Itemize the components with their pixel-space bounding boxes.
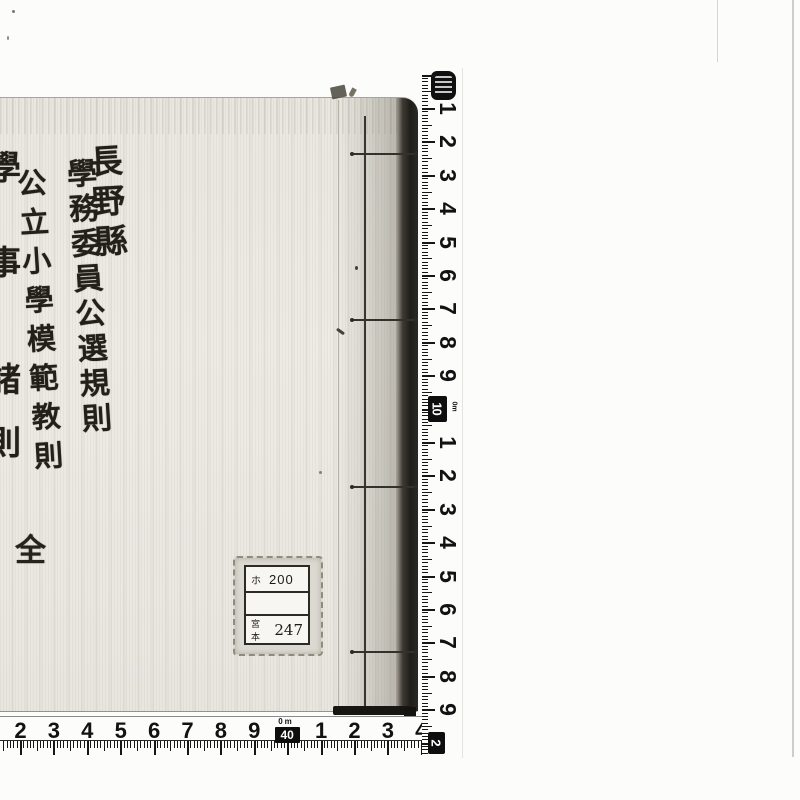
ruler-tick — [422, 442, 435, 444]
ruler-tick — [422, 192, 432, 193]
ruler-tick — [422, 639, 428, 640]
ruler-tick — [422, 205, 428, 206]
ruler-tick — [422, 175, 435, 177]
ruler-tick — [422, 98, 428, 99]
ruler-tick — [422, 345, 428, 346]
ruler-tick — [422, 198, 428, 199]
ruler-tick — [422, 489, 428, 490]
ruler-tick — [422, 713, 428, 714]
ruler-tick — [422, 168, 428, 169]
binding-stitch-segment — [352, 651, 416, 653]
ruler-tick — [422, 101, 428, 102]
ruler-tick — [422, 706, 428, 707]
sticker-row-1: ホ 200 — [246, 567, 308, 593]
ruler-tick — [422, 666, 428, 667]
ruler-tick — [422, 439, 428, 440]
ruler-tick — [422, 255, 428, 256]
ruler-tick — [422, 622, 428, 623]
ruler-tick — [422, 131, 428, 132]
ruler-unit-label: 0m — [278, 717, 294, 726]
ruler-tick — [422, 652, 428, 653]
ruler-tick — [422, 141, 435, 143]
ruler-tick — [422, 435, 428, 436]
ruler-tick — [422, 516, 428, 517]
ruler-cm-label: 2 — [5, 718, 35, 744]
ink-speck — [355, 266, 358, 270]
ruler-cm-label: 6 — [435, 262, 461, 288]
ruler-tick — [422, 662, 428, 663]
ruler-tick — [422, 218, 428, 219]
ruler-cm-label: 3 — [435, 496, 461, 522]
ruler-tick — [422, 646, 428, 647]
ruler-tick — [422, 445, 428, 446]
ruler-tick — [422, 178, 428, 179]
book-cover: 長野縣 學務委員公選規則 公立小學模範教則 學事諸則 全 ホ 200 宮本 24… — [0, 97, 418, 712]
sticker-shelf-code: ホ — [251, 572, 261, 587]
ruler-cm-label: 8 — [435, 329, 461, 355]
ruler-tick — [301, 741, 302, 748]
ruler-tick — [422, 429, 428, 430]
ruler-tick — [422, 485, 428, 486]
ruler-tick — [422, 228, 428, 229]
catalog-sticker-table: ホ 200 宮本 247 — [244, 565, 310, 645]
ruler-cm-label: 4 — [435, 529, 461, 555]
ruler-tick — [422, 719, 428, 720]
ruler-tick — [422, 128, 428, 129]
ruler-tick — [422, 592, 432, 593]
ruler-tick — [422, 195, 428, 196]
ruler-tick — [422, 365, 428, 366]
ruler-tick — [422, 546, 428, 547]
ruler-tick — [422, 612, 428, 613]
ruler-tick — [422, 158, 432, 159]
ruler-tick — [422, 295, 428, 296]
ruler-tick — [422, 225, 432, 226]
ruler-tick — [422, 125, 432, 126]
ruler-cm-label: 3 — [38, 718, 68, 744]
ink-speck — [12, 10, 15, 13]
ruler-tick — [422, 629, 428, 630]
ruler-tick — [422, 596, 428, 597]
ruler-tick — [422, 151, 428, 152]
ruler-tick — [422, 115, 428, 116]
ruler-tick — [422, 669, 428, 670]
ruler-tick — [422, 462, 428, 463]
ruler-tick — [422, 619, 428, 620]
ruler-tick — [422, 328, 428, 329]
ruler-tick — [422, 636, 428, 637]
archival-scan: 長野縣 學務委員公選規則 公立小學模範教則 學事諸則 全 ホ 200 宮本 24… — [0, 0, 800, 800]
ruler-tick — [422, 188, 428, 189]
ruler-cm-label: 8 — [205, 718, 235, 744]
binding-stitch-segment — [352, 153, 416, 155]
binding-stitch-segment — [352, 319, 416, 321]
ruler-tick — [422, 208, 435, 210]
ruler-tick — [422, 165, 428, 166]
ruler-tick — [422, 308, 435, 310]
ruler-tick — [422, 352, 428, 353]
ruler-tick — [422, 305, 428, 306]
cover-fold-line — [338, 100, 339, 709]
ruler-tick — [422, 649, 428, 650]
ruler-tick — [422, 105, 428, 106]
ruler-tick — [422, 449, 428, 450]
ruler-tick — [422, 455, 428, 456]
ruler-tick — [422, 322, 428, 323]
ruler-tick — [422, 355, 428, 356]
ruler-tick — [422, 519, 428, 520]
ruler-tick — [422, 509, 435, 511]
ruler-tick — [422, 312, 428, 313]
ruler-tick — [422, 335, 428, 336]
ruler-tick — [422, 539, 428, 540]
ruler-tick — [422, 602, 428, 603]
ruler-tick — [422, 245, 428, 246]
ruler-tick — [422, 586, 428, 587]
catalog-sticker: ホ 200 宮本 247 — [233, 556, 323, 656]
sticker-row-3: 宮本 247 — [246, 616, 308, 643]
ruler-tick — [422, 673, 428, 674]
ruler-decimeter-badge: 2 — [428, 732, 445, 754]
ruler-tick — [422, 459, 432, 460]
ruler-cm-label: 8 — [435, 663, 461, 689]
ruler-tick — [422, 382, 428, 383]
ruler-unit-label: 0m — [451, 401, 458, 411]
ruler-cm-label: 1 — [435, 95, 461, 121]
sticker-row-2 — [246, 593, 308, 616]
ruler-tick — [422, 753, 428, 754]
page-edge-shadow — [396, 98, 418, 711]
ruler-tick — [422, 502, 428, 503]
ruler-tick — [422, 542, 435, 544]
ruler-tick — [422, 121, 428, 122]
ruler-tick — [422, 495, 428, 496]
ink-speck — [7, 36, 9, 40]
ruler-tick — [422, 536, 428, 537]
ruler-tick — [422, 182, 428, 183]
ruler-tick — [271, 741, 272, 751]
ruler-tick — [422, 559, 432, 560]
ruler-tick — [422, 703, 428, 704]
ruler-tick — [422, 298, 428, 299]
ruler-cm-label: 5 — [435, 563, 461, 589]
binding-stitch-segment — [352, 486, 416, 488]
ruler-tick — [422, 492, 432, 493]
ruler-tick — [422, 238, 428, 239]
scan-edge-line — [717, 0, 718, 62]
ruler-tick — [422, 342, 435, 344]
ruler-tick — [422, 359, 432, 360]
ruler-tick — [422, 432, 428, 433]
ruler-tick — [422, 88, 428, 89]
ruler-cm-label: 5 — [105, 718, 135, 744]
ruler-tick — [422, 709, 435, 711]
ruler-tick — [422, 512, 428, 513]
ruler-tick — [422, 332, 428, 333]
ruler-badge-value: 2 — [429, 739, 444, 745]
ruler-tick — [422, 469, 428, 470]
ruler-tick — [422, 696, 428, 697]
ruler-tick — [422, 392, 432, 393]
sticker-collection-name: 宮本 — [251, 617, 266, 643]
ruler-tick — [422, 609, 435, 611]
ruler-tick — [422, 292, 432, 293]
ruler-tick — [422, 248, 428, 249]
ruler-tick — [422, 275, 435, 277]
ruler-tick — [422, 723, 428, 724]
ruler-tick — [287, 741, 289, 755]
ruler-tick — [422, 372, 428, 373]
ruler-tick — [422, 689, 428, 690]
ruler-tick — [422, 642, 435, 644]
ruler-tick — [422, 676, 435, 678]
ruler-tick — [422, 726, 432, 727]
ruler-tick — [422, 379, 428, 380]
ruler-cm-label: 4 — [435, 195, 461, 221]
ruler-tick — [422, 422, 428, 423]
book-quantity-char: 全 — [15, 536, 46, 567]
ruler-cm-label: 6 — [435, 596, 461, 622]
ruler-cm-label: 4 — [72, 718, 102, 744]
vertical-ruler: 123456789100m1234567892 — [422, 68, 463, 758]
ruler-tick — [422, 202, 428, 203]
ruler-tick — [422, 78, 428, 79]
ruler-tick — [422, 339, 428, 340]
ruler-tick — [422, 479, 428, 480]
ruler-cm-label: 7 — [172, 718, 202, 744]
ruler-tick — [422, 632, 428, 633]
ruler-tick — [422, 111, 428, 112]
ruler-tick — [422, 155, 428, 156]
ruler-tick — [422, 215, 428, 216]
ruler-tick — [422, 589, 428, 590]
binding-stitch-line — [364, 116, 366, 708]
ruler-tick — [422, 572, 428, 573]
ruler-cm-label: 2 — [339, 718, 369, 744]
ruler-tick — [422, 569, 428, 570]
ruler-tick — [422, 389, 428, 390]
book-title-secondary: 公立小學模範教則 — [14, 167, 62, 480]
ruler-tick — [422, 529, 428, 530]
book-bottom-edge — [333, 706, 411, 715]
ruler-tick — [422, 369, 428, 370]
ruler-tick — [422, 258, 432, 259]
ruler-tick — [422, 556, 428, 557]
ruler-cm-label: 1 — [306, 718, 336, 744]
ruler-tick — [422, 148, 428, 149]
ruler-tick — [422, 566, 428, 567]
ruler-tick — [422, 425, 432, 426]
ruler-tick — [422, 475, 435, 477]
ruler-tick — [422, 506, 428, 507]
ruler-cm-label: 5 — [435, 229, 461, 255]
ruler-tick — [422, 375, 435, 377]
ruler-tick — [422, 282, 428, 283]
ruler-tick — [422, 499, 428, 500]
sticker-collection-number: 247 — [274, 621, 303, 639]
ruler-tick — [422, 135, 428, 136]
ruler-tick — [422, 242, 435, 244]
ruler-tick — [422, 285, 428, 286]
ruler-tick — [422, 138, 428, 139]
ruler-tick — [422, 693, 432, 694]
ruler-tick — [422, 576, 435, 578]
ruler-tick — [422, 318, 428, 319]
ruler-tick — [422, 562, 428, 563]
ruler-tick — [422, 272, 428, 273]
ruler-tick — [422, 118, 428, 119]
ruler-tick — [422, 325, 432, 326]
horizontal-ruler: 23456789400m1234 — [0, 716, 444, 759]
ruler-tick — [422, 265, 428, 266]
ruler-tick — [422, 232, 428, 233]
scan-edge-line — [792, 0, 794, 757]
ruler-tick — [422, 252, 428, 253]
ruler-tick — [422, 185, 428, 186]
ruler-cm-label: 9 — [239, 718, 269, 744]
ruler-tick — [422, 172, 428, 173]
ruler-cm-label: 3 — [372, 718, 402, 744]
ruler-tick — [422, 95, 428, 96]
ruler-cm-label: 3 — [435, 162, 461, 188]
ruler-tick — [422, 395, 428, 396]
ruler-tick — [422, 288, 428, 289]
ruler-tick — [422, 522, 428, 523]
ruler-decimeter-badge: 10 — [428, 396, 447, 422]
ruler-tick — [422, 626, 432, 627]
ruler-tick — [422, 362, 428, 363]
ruler-decimeter-badge: 40 — [275, 727, 300, 743]
ruler-tick — [422, 212, 428, 213]
ruler-badge-value: 10 — [430, 402, 445, 414]
ruler-tick — [422, 302, 428, 303]
book-edge-char: 諸 — [0, 363, 21, 396]
ruler-tick — [422, 385, 428, 386]
ruler-tick — [422, 161, 428, 162]
ruler-tick — [422, 716, 428, 717]
ruler-cm-label: 1 — [435, 429, 461, 455]
ruler-tick — [422, 686, 428, 687]
ruler-tick — [422, 452, 428, 453]
ruler-tick — [422, 222, 428, 223]
spine-tint — [338, 98, 396, 711]
book-edge-char: 事 — [0, 246, 21, 279]
ruler-tick — [422, 582, 428, 583]
ruler-tick — [422, 599, 428, 600]
ruler-tick — [422, 235, 428, 236]
ruler-tick — [422, 465, 428, 466]
ruler-tick — [422, 91, 432, 92]
ruler-tick — [422, 606, 428, 607]
ruler-tick — [422, 699, 428, 700]
ruler-cm-label: 9 — [435, 696, 461, 722]
ruler-tick — [422, 616, 428, 617]
book-edge-char: 學 — [0, 151, 21, 184]
ruler-cm-label: 2 — [435, 462, 461, 488]
sticker-shelf-number: 200 — [269, 572, 294, 587]
ruler-tick — [422, 278, 428, 279]
ruler-tick — [422, 549, 428, 550]
ruler-tick — [422, 683, 428, 684]
ruler-tick — [422, 579, 428, 580]
book-edge-char: 則 — [0, 426, 21, 459]
ruler-tick — [422, 532, 428, 533]
ruler-cm-label: 2 — [435, 128, 461, 154]
ink-speck — [319, 471, 322, 474]
ruler-tick — [422, 81, 428, 82]
ruler-tick — [422, 472, 428, 473]
ruler-tick — [422, 679, 428, 680]
ruler-tick — [422, 656, 428, 657]
ruler-tick — [422, 729, 428, 730]
ruler-cm-label: 9 — [435, 362, 461, 388]
ruler-tick — [422, 262, 428, 263]
ruler-tick — [422, 659, 432, 660]
ruler-tick — [422, 349, 428, 350]
ruler-tick — [422, 315, 428, 316]
ruler-tick — [422, 108, 435, 110]
ruler-tick — [422, 552, 428, 553]
ruler-tick — [422, 145, 428, 146]
ruler-tick — [422, 75, 435, 77]
ruler-tick — [422, 526, 432, 527]
ruler-cm-label: 7 — [435, 629, 461, 655]
ruler-tick — [422, 482, 428, 483]
ruler-cm-label: 6 — [139, 718, 169, 744]
ruler-tick — [422, 85, 428, 86]
ruler-cm-label: 7 — [435, 295, 461, 321]
ruler-tick — [422, 268, 428, 269]
